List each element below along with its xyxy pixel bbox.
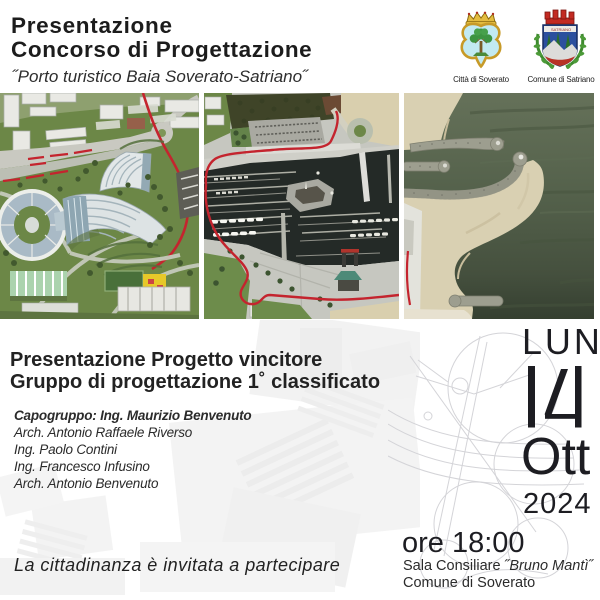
- svg-text:SATRIANO: SATRIANO: [551, 27, 571, 32]
